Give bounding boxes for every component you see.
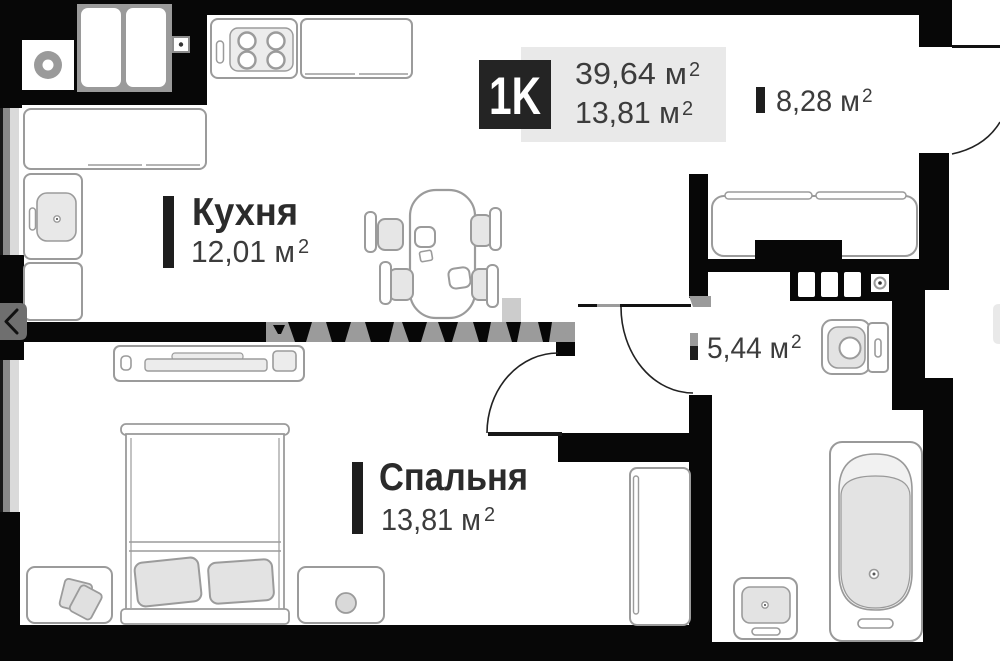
svg-text:5,44 м: 5,44 м xyxy=(707,332,789,365)
svg-text:8,28 м: 8,28 м xyxy=(776,85,860,118)
svg-text:2: 2 xyxy=(862,86,873,107)
svg-text:2: 2 xyxy=(298,236,309,258)
svg-text:12,01 м: 12,01 м xyxy=(191,234,295,269)
svg-text:39,64 м: 39,64 м xyxy=(575,56,687,91)
svg-text:2: 2 xyxy=(791,332,802,353)
svg-text:Спальня: Спальня xyxy=(379,456,528,499)
svg-text:13,81 м: 13,81 м xyxy=(575,95,680,130)
svg-text:1K: 1K xyxy=(489,67,541,126)
svg-text:13,81 м: 13,81 м xyxy=(381,502,481,537)
svg-text:2: 2 xyxy=(682,98,693,120)
svg-text:2: 2 xyxy=(689,59,700,81)
svg-text:Кухня: Кухня xyxy=(192,191,298,234)
svg-text:2: 2 xyxy=(484,504,495,526)
